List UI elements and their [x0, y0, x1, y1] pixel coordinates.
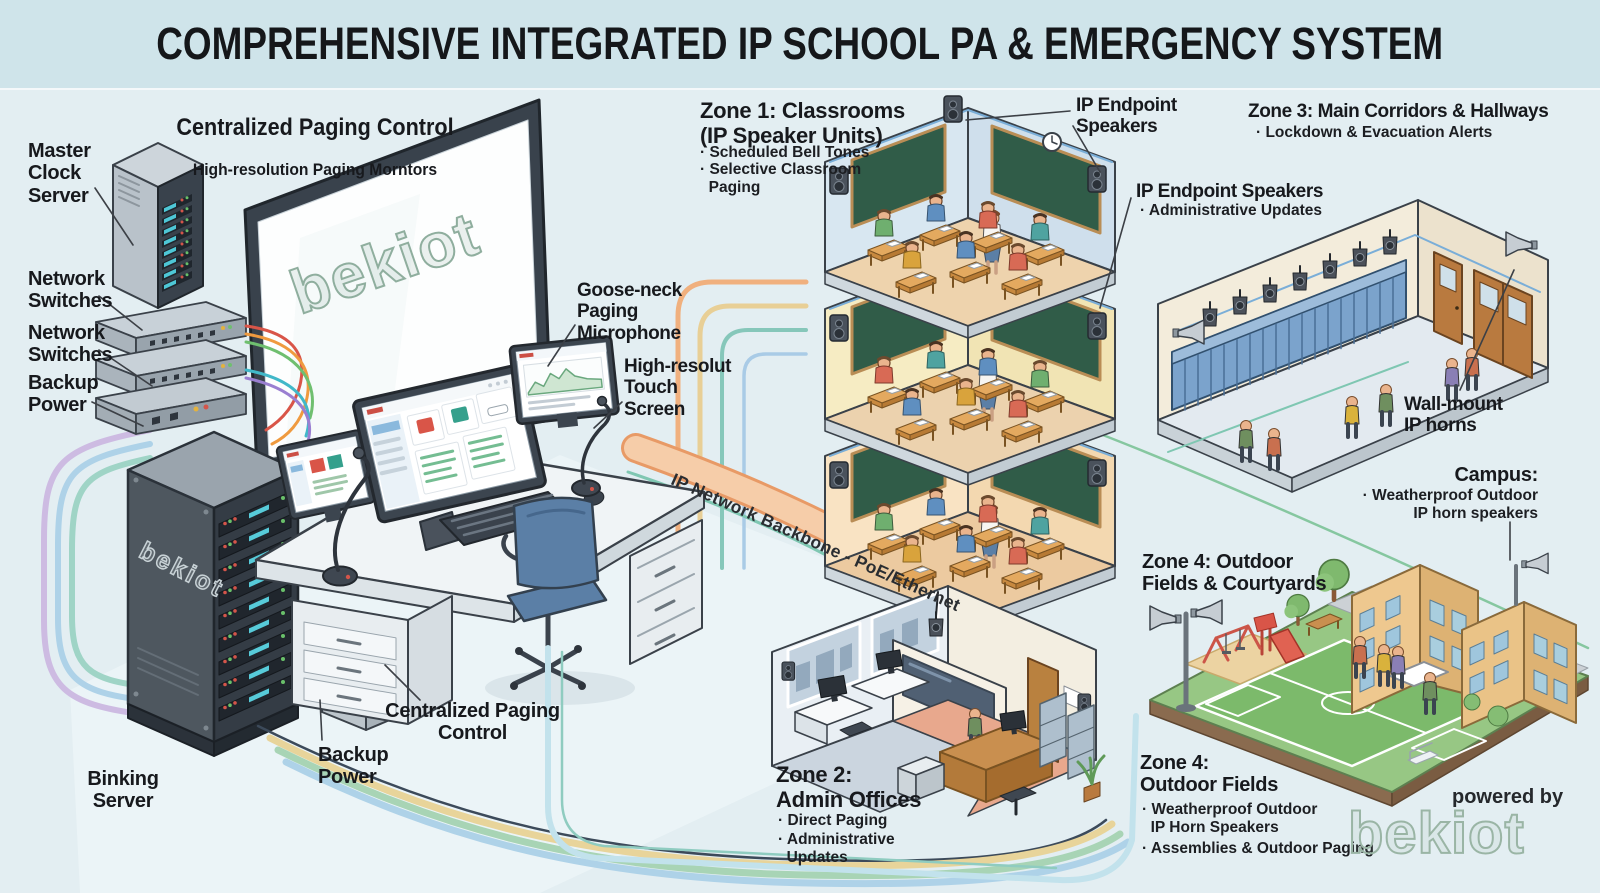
- label-binking-server: Binking Server: [78, 768, 168, 813]
- ip-speaker-icon: [1088, 460, 1106, 486]
- label-desk: Centralized Paging Control: [385, 700, 560, 745]
- ip-speaker-icon: [830, 462, 848, 488]
- zone1-endpoint-speakers-2: IP Endpoint Speakers: [1136, 181, 1323, 202]
- ip-speaker-icon: [830, 315, 848, 341]
- zone3-hallway: [1158, 200, 1548, 492]
- zone1-bullet-1: · Scheduled Bell Tones: [700, 144, 869, 162]
- zone3-heading: Zone 3: Main Corridors & Hallways: [1248, 101, 1548, 122]
- ip-speaker-icon: [1088, 166, 1106, 192]
- label-touch-screen: High-resolut Touch Screen: [624, 356, 731, 420]
- label-backup-power-top: Backup Power: [28, 372, 98, 417]
- zone2-bullet-2: · Administrative Updates: [778, 831, 895, 868]
- brand-logo: bekiot: [1348, 800, 1525, 867]
- bush-icon: [1488, 706, 1508, 726]
- campus-heading: Campus:: [1398, 464, 1538, 486]
- zone1-endpoint-speakers-2-bullet: · Administrative Updates: [1140, 202, 1322, 220]
- label-backup-power-bottom: Backup Power: [318, 744, 388, 789]
- zone3-bullet-1: · Lockdown & Evacuation Alerts: [1256, 124, 1492, 142]
- clock-icon: [1043, 133, 1061, 151]
- infographic-canvas: COMPREHENSIVE INTEGRATED IP SCHOOL PA & …: [0, 0, 1600, 893]
- zone2-heading: Zone 2: Admin Offices: [776, 763, 921, 812]
- zone1-heading: Zone 1: Classrooms (IP Speaker Units): [700, 99, 905, 148]
- zone1-bullet-2: · Selective Classroom Paging: [700, 161, 861, 198]
- door-icon: [1434, 252, 1462, 344]
- building-horn-icon: [1516, 553, 1548, 604]
- label-network-switches-2: Network Switches: [28, 322, 112, 367]
- control-center-heading: Centralized Paging Control High-resoluti…: [150, 97, 480, 197]
- zone1-endpoint-speakers: IP Endpoint Speakers: [1076, 95, 1177, 138]
- zone1-classrooms: [825, 96, 1115, 632]
- label-network-switches-1: Network Switches: [28, 268, 112, 313]
- zone2-bullet-1: · Direct Paging: [778, 812, 887, 830]
- heading-text: Centralized Paging Control: [167, 115, 464, 142]
- zone4-fields-heading: Zone 4: Outdoor Fields: [1140, 752, 1278, 797]
- label-gooseneck-mic: Goose-neck Paging Microphone: [577, 280, 682, 344]
- bush-icon: [1464, 694, 1480, 710]
- ip-speaker-icon: [944, 96, 962, 122]
- label-master-clock-server: Master Clock Server: [28, 140, 91, 207]
- ip-speaker-icon: [782, 662, 795, 680]
- subheading-text: High-resolution Paging Morntors: [163, 160, 467, 179]
- campus-bullet: · Weatherproof Outdoor IP horn speakers: [1358, 487, 1538, 524]
- zone4-bullet-1: · Weatherproof Outdoor IP Horn Speakers: [1142, 801, 1317, 838]
- touch-screen-monitor: [509, 336, 619, 432]
- ip-speaker-icon: [1088, 313, 1106, 339]
- zone4-bullet-2: · Assemblies & Outdoor Paging: [1142, 840, 1374, 858]
- zone4-heading: Zone 4: Outdoor Fields & Courtyards: [1142, 551, 1326, 596]
- zone3-wall-mount: Wall-mount IP horns: [1404, 394, 1503, 437]
